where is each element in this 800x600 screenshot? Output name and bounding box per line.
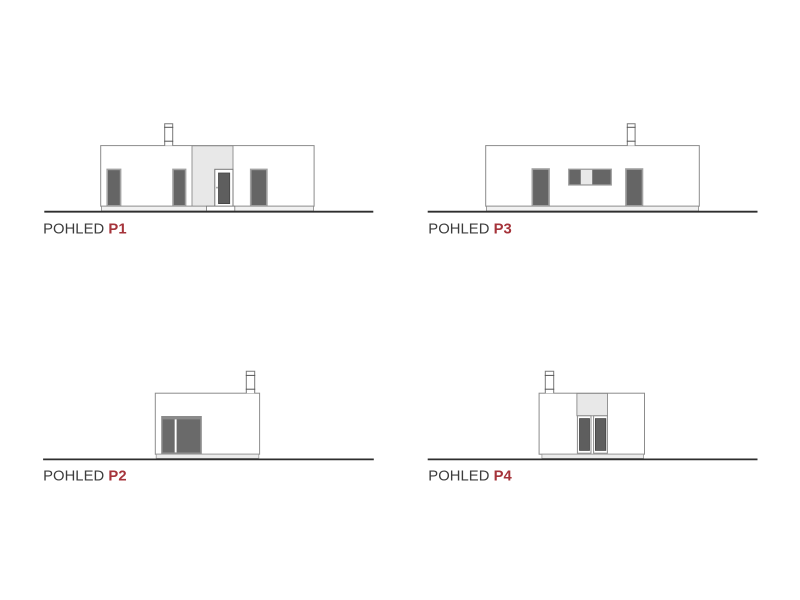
svg-text:POHLED P4: POHLED P4 xyxy=(428,469,512,485)
svg-text:POHLED P1: POHLED P1 xyxy=(43,221,127,237)
svg-text:POHLED P2: POHLED P2 xyxy=(43,469,127,485)
svg-text:POHLED P3: POHLED P3 xyxy=(428,221,512,237)
